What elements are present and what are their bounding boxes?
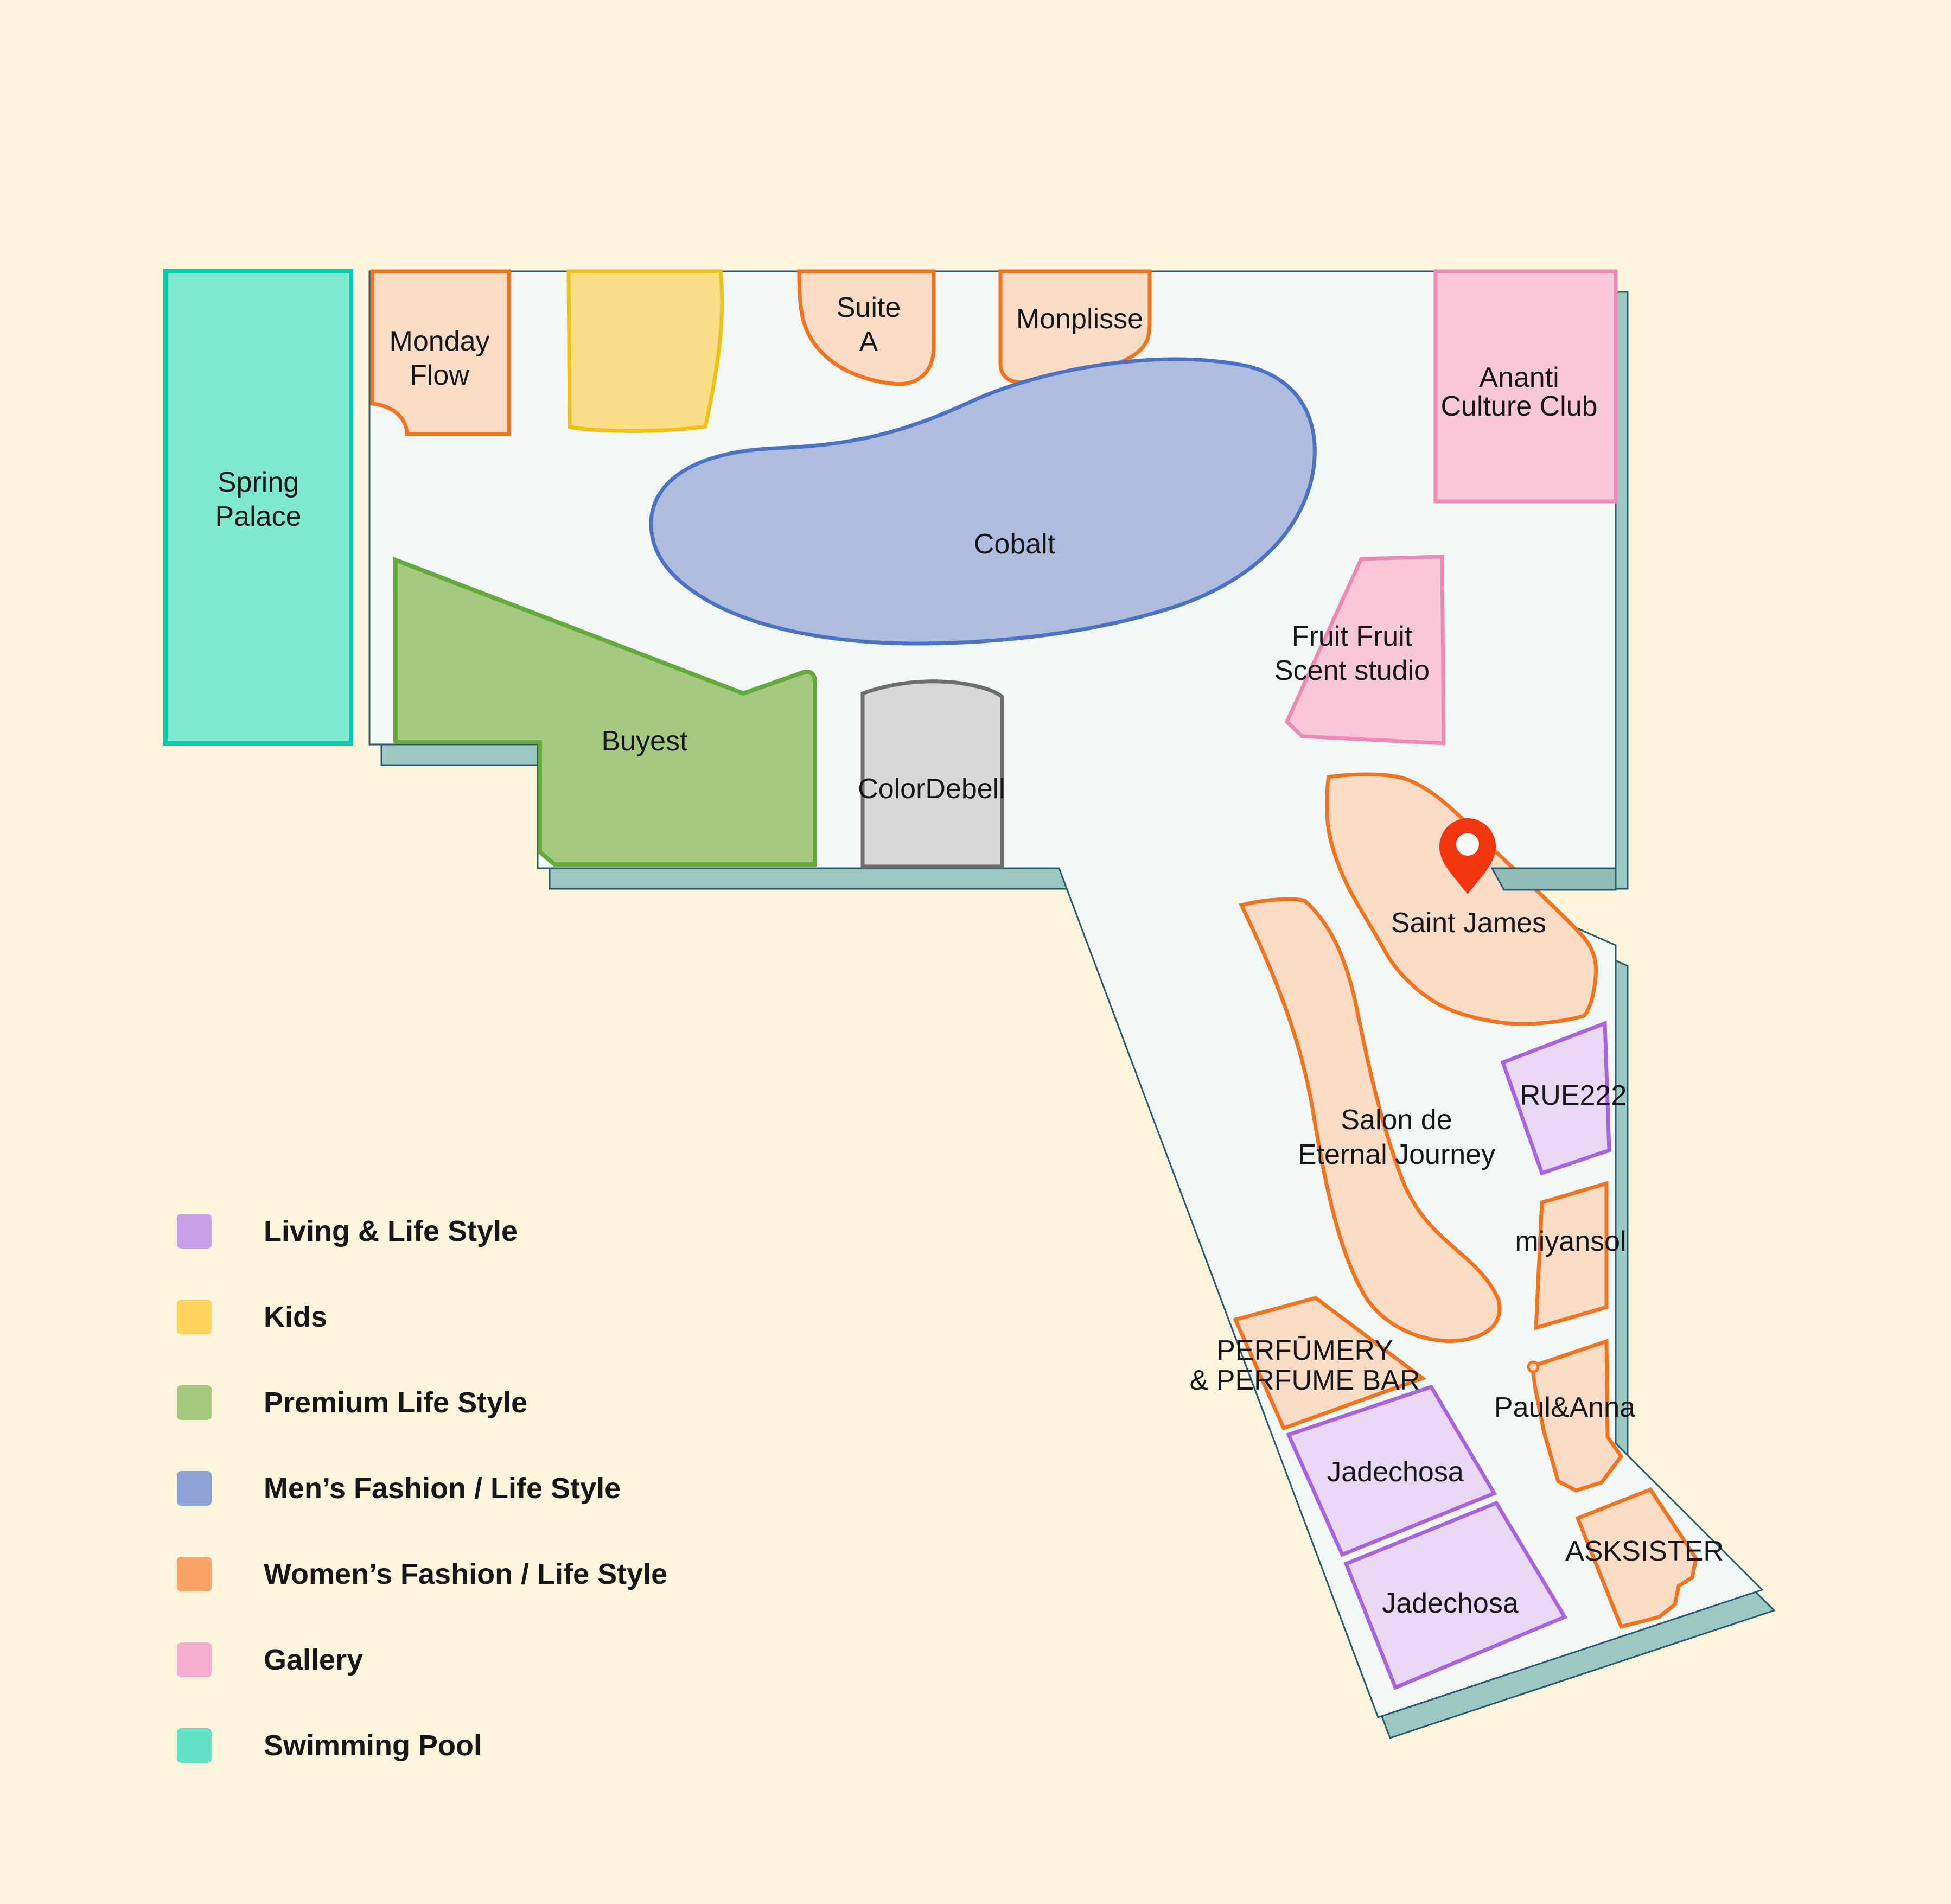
paul-anna-label: Paul&Anna [1494,1392,1635,1423]
suite-a-label-line1: Suite [837,292,901,323]
asksister-label: ASKSISTER [1565,1536,1724,1567]
legend-item-swimming-pool: Swimming Pool [177,1728,667,1763]
miyansol-label: miyansol [1515,1226,1626,1257]
legend: Living & Life Style Kids Premium Life St… [177,1214,667,1814]
legend-item-premium-life-style: Premium Life Style [177,1385,667,1420]
legend-label-womens: Women’s Fashion / Life Style [264,1557,667,1591]
legend-item-gallery: Gallery [177,1642,667,1677]
legend-label-kids: Kids [264,1300,327,1334]
legend-label-gallery: Gallery [264,1643,363,1677]
paul-anna-corner-detail [1528,1362,1538,1372]
floor-plan-page: Spring Palace Monday Flow Suite A Monpli… [0,0,1951,1904]
legend-swatch-gallery [177,1642,212,1677]
salon-label-line1: Salon de [1341,1104,1452,1136]
pin-hole [1456,833,1479,856]
legend-item-kids: Kids [177,1300,667,1334]
legend-swatch-premium [177,1385,212,1420]
legend-label-mens: Men’s Fashion / Life Style [264,1472,621,1505]
fruit-fruit-label-line2: Scent studio [1274,655,1430,686]
saint-james-label: Saint James [1391,907,1546,939]
ananti-label-line2: Culture Club [1440,391,1597,422]
monday-flow-label-line1: Monday [390,326,490,357]
spring-palace-label-line1: Spring [218,467,299,498]
store-spring-palace[interactable]: Spring Palace [165,271,351,743]
ananti-label-line1: Ananti [1479,362,1559,393]
cobalt-label: Cobalt [974,528,1056,560]
spring-palace-label-line2: Palace [215,501,302,532]
store-monday-flow[interactable]: Monday Flow [372,271,509,434]
legend-label-living: Living & Life Style [264,1214,518,1248]
floor-edge-strip-overlay [1492,868,1616,890]
legend-item-womens-fashion: Women’s Fashion / Life Style [177,1557,667,1591]
suite-a-label-line2: A [859,326,878,358]
legend-label-premium: Premium Life Style [264,1386,527,1419]
monplisse-label: Monplisse [1016,303,1143,335]
perfumery-label-line1: PERFŪMERY [1216,1335,1393,1366]
legend-swatch-mens [177,1471,212,1506]
kids-area-shape[interactable] [569,271,722,431]
colordebell-label: ColorDebell [858,773,1005,805]
store-colordebell[interactable]: ColorDebell [858,682,1005,867]
legend-swatch-kids [177,1300,212,1334]
jadechosa-upper-label: Jadechosa [1327,1456,1464,1488]
legend-item-living-life-style: Living & Life Style [177,1214,667,1249]
store-ananti-culture-club[interactable]: Ananti Culture Club [1436,271,1616,501]
legend-item-mens-fashion: Men’s Fashion / Life Style [177,1471,667,1506]
rue222-label: RUE222 [1520,1080,1627,1111]
legend-label-pool: Swimming Pool [264,1729,482,1762]
legend-swatch-womens [177,1557,212,1591]
fruit-fruit-label-line1: Fruit Fruit [1292,621,1413,652]
perfumery-label-line2: & PERFUME BAR [1190,1365,1420,1396]
buyest-label: Buyest [602,725,688,757]
salon-label-line2: Eternal Journey [1298,1139,1495,1170]
legend-swatch-pool [177,1728,212,1763]
legend-swatch-living [177,1214,212,1249]
monday-flow-label-line2: Flow [410,360,469,391]
jadechosa-lower-label: Jadechosa [1382,1588,1519,1619]
